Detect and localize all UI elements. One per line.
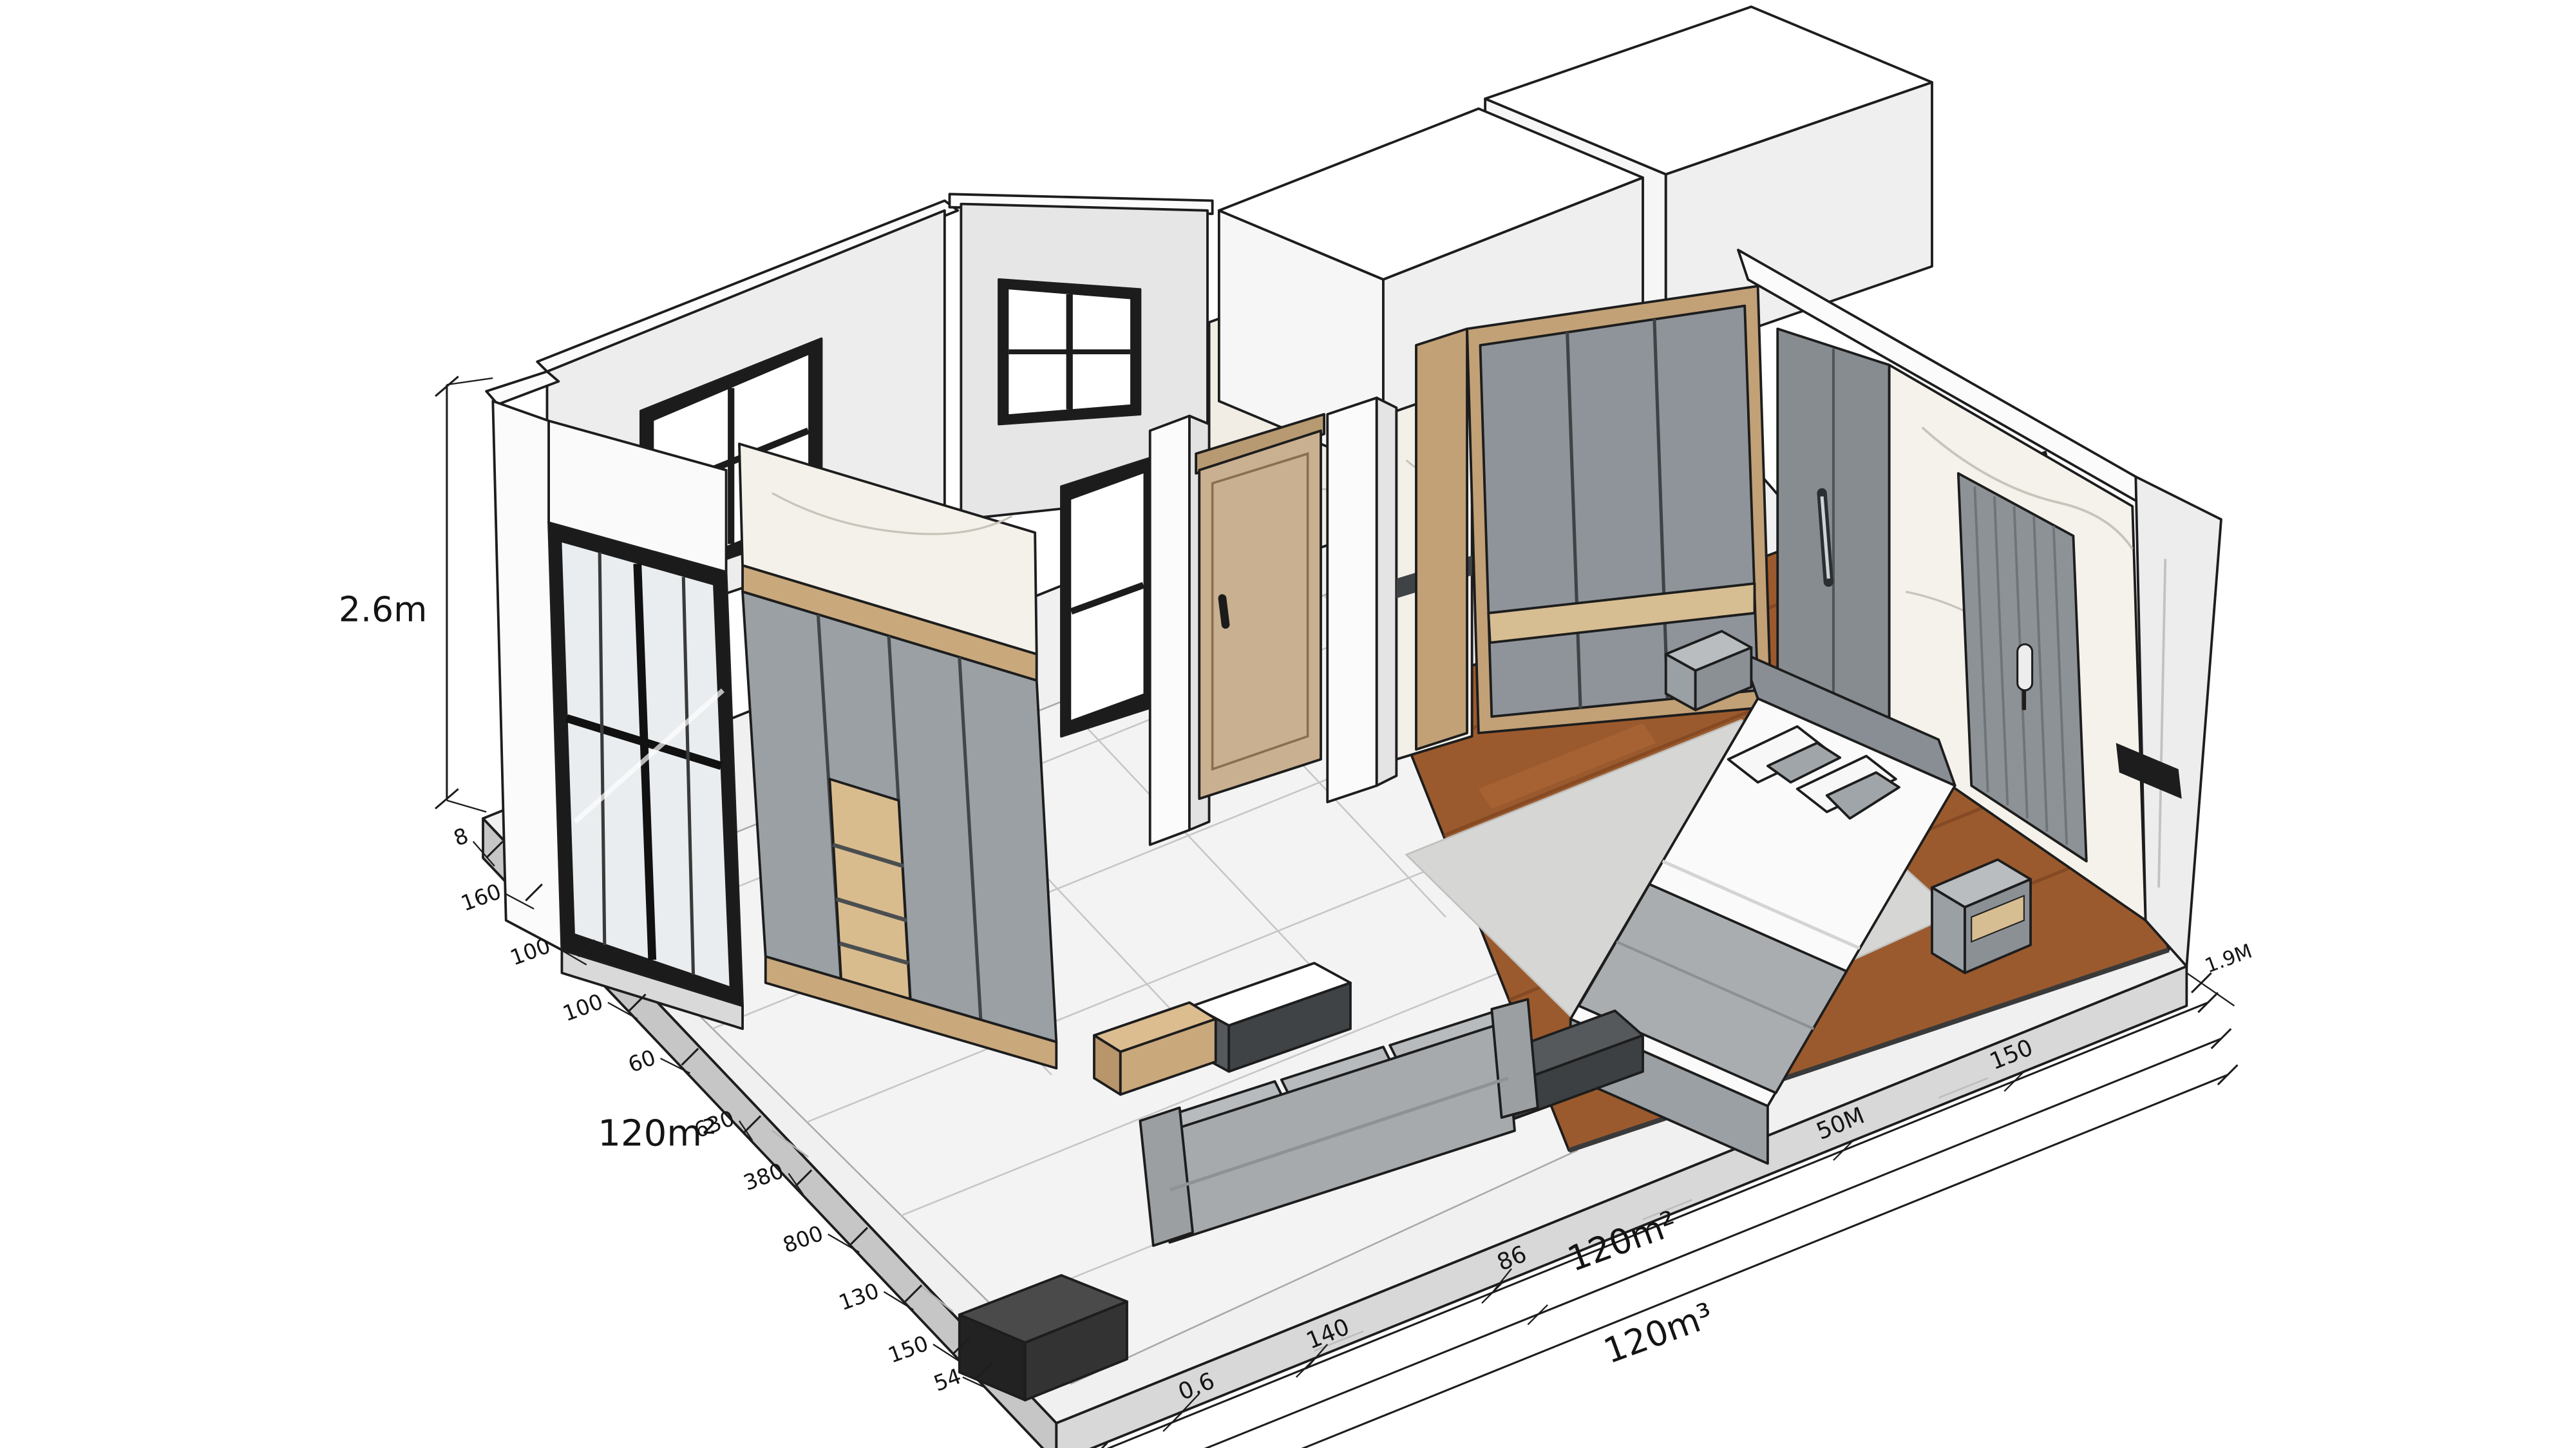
dimension-height: 2.6m	[339, 376, 493, 812]
dim-left-7: 800	[780, 1221, 827, 1258]
dim-left-2: 100	[507, 933, 554, 970]
dim-left-1: 160	[458, 879, 505, 916]
rendering-stage: 2.6m 8 160 100 100 60 630 380 800 130 15…	[0, 0, 2576, 1448]
dim-left-8: 130	[835, 1278, 882, 1315]
dim-right-corner: 1.9M	[2202, 940, 2255, 978]
door-handle	[1222, 598, 1226, 625]
height-label: 2.6m	[339, 589, 427, 630]
hallway-window	[1061, 457, 1153, 736]
pillar-right	[1327, 398, 1377, 803]
dim-left-0: 8	[450, 823, 471, 851]
interior-door	[1199, 431, 1321, 799]
entry-wardrobe	[739, 444, 1056, 1068]
dim-left-9: 150	[885, 1331, 932, 1368]
sliding-glass-door	[493, 401, 743, 1029]
area-label-left: 120m²	[598, 1112, 716, 1154]
volume-label: 120m³	[1598, 1295, 1719, 1371]
pillar-left	[1150, 416, 1189, 845]
wardrobe-open-drawers	[829, 779, 910, 999]
dim-left-6: 380	[740, 1158, 787, 1196]
apartment-isometric-rendering: 2.6m 8 160 100 100 60 630 380 800 130 15…	[0, 0, 2576, 1448]
dim-left-3: 100	[560, 989, 607, 1026]
dim-left-4: 60	[625, 1045, 659, 1078]
room-window-right	[999, 280, 1140, 424]
dimension-right-corner: 1.9M	[2186, 940, 2255, 1005]
